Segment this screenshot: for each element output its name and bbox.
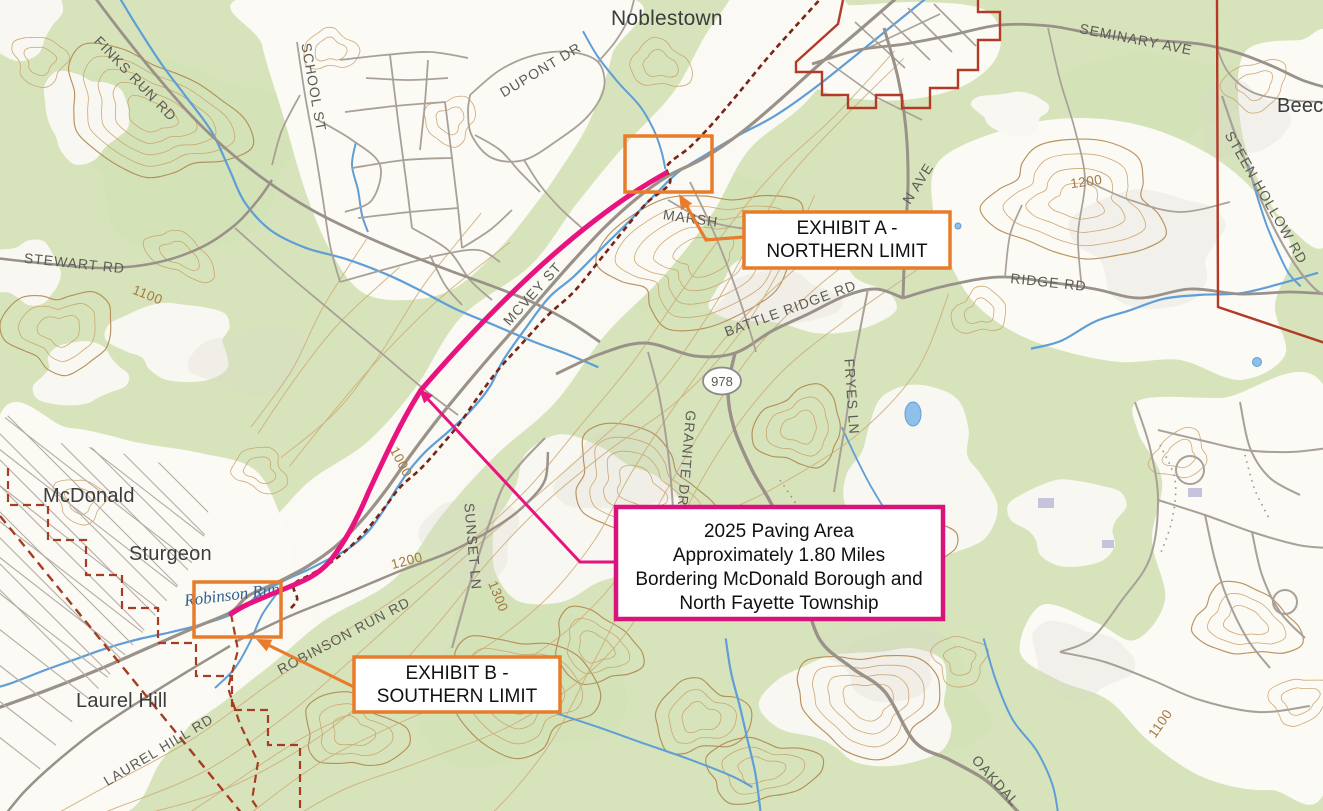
svg-text:SOUTHERN LIMIT: SOUTHERN LIMIT: [377, 686, 538, 707]
svg-text:Noblestown: Noblestown: [611, 7, 723, 30]
svg-text:McDonald: McDonald: [43, 485, 135, 507]
svg-text:Approximately 1.80 Miles: Approximately 1.80 Miles: [673, 545, 885, 566]
svg-text:978: 978: [711, 374, 733, 389]
svg-text:EXHIBIT B -: EXHIBIT B -: [405, 663, 508, 684]
svg-text:Sturgeon: Sturgeon: [129, 543, 212, 565]
svg-text:North Fayette Township: North Fayette Township: [679, 593, 878, 614]
svg-text:Bordering McDonald Borough and: Bordering McDonald Borough and: [635, 569, 922, 590]
svg-text:NORTHERN LIMIT: NORTHERN LIMIT: [766, 241, 928, 262]
svg-text:EXHIBIT A -: EXHIBIT A -: [796, 218, 897, 239]
svg-text:2025 Paving Area: 2025 Paving Area: [704, 521, 854, 542]
svg-text:Beech: Beech: [1277, 95, 1323, 117]
svg-text:Laurel Hill: Laurel Hill: [76, 690, 167, 712]
